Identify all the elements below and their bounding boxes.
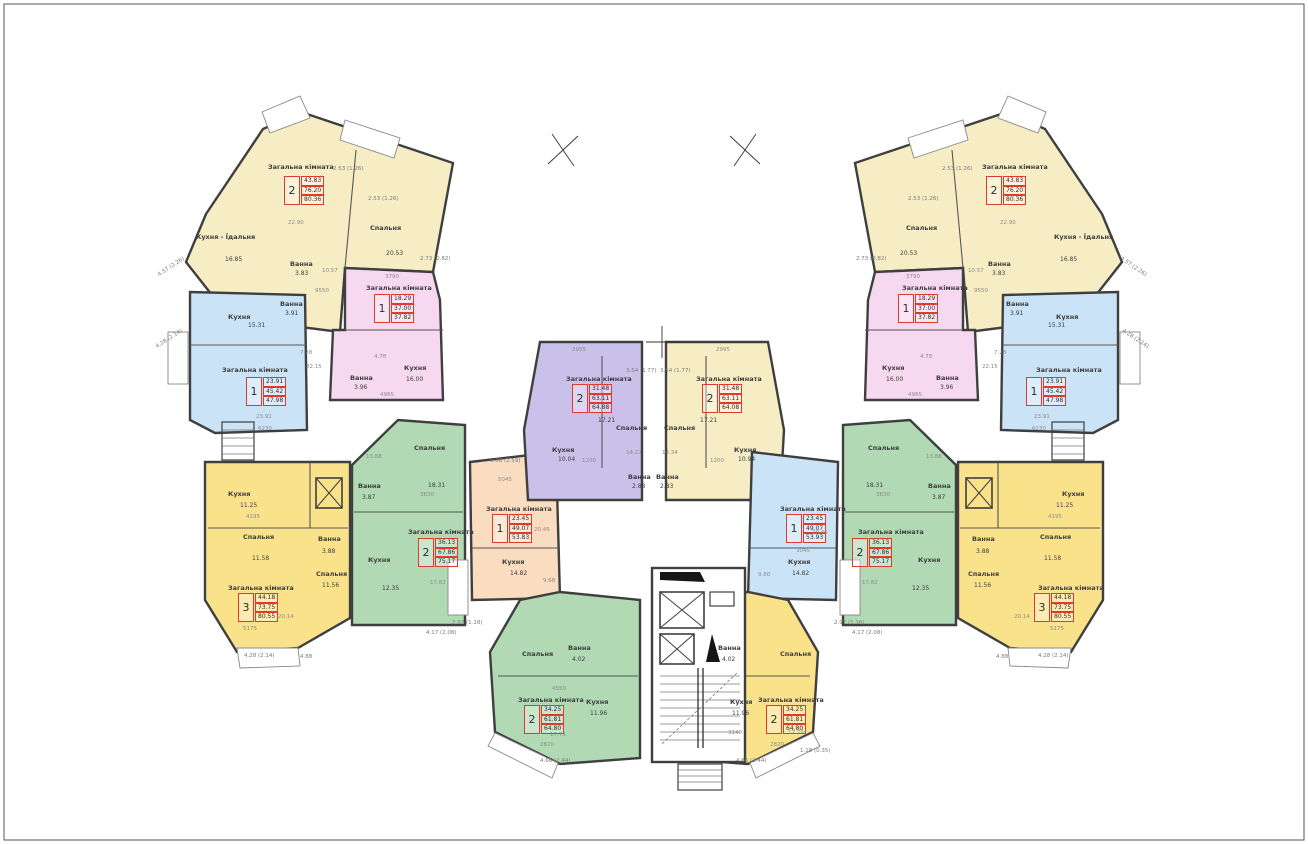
room-area: 14.82 — [510, 570, 527, 577]
dimension: 9.68 — [543, 578, 555, 584]
unit-c5-shape — [490, 592, 640, 764]
balcony-area: 4.17 (2.08) — [426, 630, 457, 636]
room-label: Спальня — [243, 533, 274, 541]
unit-l4-shape — [205, 462, 350, 652]
area-value: 75.17 — [869, 557, 892, 567]
area-value: 73.75 — [1051, 603, 1074, 613]
dimension: 2820 — [540, 742, 554, 748]
dimension: 20.14 — [278, 614, 294, 620]
apartment-number: 1 — [374, 294, 390, 323]
room-area: 3.91 — [1010, 310, 1023, 317]
dimension: 17.82 — [862, 580, 878, 586]
area-value: 43.83 — [301, 176, 324, 186]
room-label: Ванна — [972, 535, 995, 543]
room-label: Кухня - Їдальня — [196, 233, 255, 241]
dimension: 14.34 — [662, 450, 678, 456]
room-area: 17.21 — [700, 417, 717, 424]
dimension: 6230 — [258, 426, 272, 432]
balcony-area: 3.54 (1.77) — [626, 368, 657, 374]
room-label: Ванна — [936, 374, 959, 382]
room-area: 20.53 — [386, 250, 403, 257]
room-area: 3.87 — [362, 494, 375, 501]
room-label: Спальня — [316, 570, 347, 578]
dimension: 4985 — [908, 392, 922, 398]
room-label: Кухня — [552, 446, 574, 454]
area-value: 45.42 — [1043, 387, 1066, 397]
area-value: 18.29 — [391, 294, 414, 304]
room-area: 10.04 — [558, 456, 575, 463]
room-label: Спальня — [1040, 533, 1071, 541]
unit-label: Загальна кімната — [486, 505, 552, 513]
dimension: 10.57 — [968, 268, 984, 274]
unit-label: Загальна кімната — [902, 284, 968, 292]
balcony-area: 4.66 (2.44) — [540, 758, 571, 764]
dimension: 22.15 — [306, 364, 322, 370]
area-value: 75.17 — [435, 557, 458, 567]
room-area: 3.96 — [354, 384, 367, 391]
side-stair-icon — [222, 422, 1084, 460]
room-label: Кухня — [228, 490, 250, 498]
dimension: 13.88 — [926, 454, 942, 460]
room-area: 11.56 — [322, 582, 339, 589]
area-value: 31.48 — [719, 384, 742, 394]
apartment-info-box: 3 44.1873.7580.55 — [1034, 593, 1074, 622]
apartment-info-box: 1 23.9145.4247.98 — [1026, 377, 1066, 406]
balcony-area: 4.88 — [300, 654, 312, 660]
room-label: Кухня — [1056, 313, 1078, 321]
room-label: Ванна — [350, 374, 373, 382]
area-value: 80.36 — [1003, 195, 1026, 205]
unit-label: Загальна кімната — [982, 163, 1048, 171]
room-label: Спальня — [370, 224, 401, 232]
balcony-area: 2.53 (1.26) — [333, 166, 364, 172]
room-area: 11.96 — [590, 710, 607, 717]
dimension: 2995 — [572, 347, 586, 353]
balcony-area: 4.88 — [996, 654, 1008, 660]
area-value: 37.00 — [391, 304, 414, 314]
apartment-number: 2 — [572, 384, 588, 413]
area-value: 64.88 — [589, 403, 612, 413]
dimension: 9550 — [974, 288, 988, 294]
apartment-number: 2 — [524, 705, 540, 734]
balcony-area: 4.28 (2.14) — [244, 653, 275, 659]
apartment-number: 2 — [852, 538, 868, 567]
area-value: 64.08 — [719, 403, 742, 413]
area-value: 34.25 — [783, 705, 806, 715]
dimension: 20.45 — [812, 530, 828, 536]
balcony-area: 2.97 (1.16) — [834, 620, 865, 626]
room-label: Кухня — [788, 558, 810, 566]
dimension: 1200 — [710, 458, 724, 464]
unit-label: Загальна кімната — [518, 696, 584, 704]
area-value: 80.36 — [301, 195, 324, 205]
room-label: Ванна — [358, 482, 381, 490]
unit-label: Загальна кімната — [222, 366, 288, 374]
room-label: Ванна — [1006, 300, 1029, 308]
dimension: 23.91 — [1034, 414, 1050, 420]
room-label: Спальня — [616, 424, 647, 432]
dimension: 22.90 — [1000, 220, 1016, 226]
room-area: 11.58 — [252, 555, 269, 562]
area-value: 61.81 — [541, 715, 564, 725]
balcony-area: 2.53 (1.26) — [942, 166, 973, 172]
floor-plan-shapes — [0, 0, 1308, 844]
room-area: 16.00 — [886, 376, 903, 383]
area-value: 47.98 — [263, 396, 286, 406]
dimension: 4550 — [552, 686, 566, 692]
apartment-number: 3 — [1034, 593, 1050, 622]
room-label: Кухня — [918, 556, 940, 564]
room-area: 12.35 — [912, 585, 929, 592]
unit-label: Загальна кімната — [366, 284, 432, 292]
room-area: 2.83 — [660, 483, 673, 490]
room-label: Кухня — [368, 556, 390, 564]
unit-label: Загальна кімната — [696, 375, 762, 383]
area-value: 80.55 — [1051, 612, 1074, 622]
area-value: 49.07 — [509, 524, 532, 534]
room-area: 3.87 — [932, 494, 945, 501]
apartment-info-box: 3 44.1873.7580.55 — [238, 593, 278, 622]
room-label: Ванна — [628, 473, 651, 481]
room-label: Спальня — [522, 650, 553, 658]
room-label: Кухня - Їдальня — [1054, 233, 1113, 241]
room-area: 16.85 — [225, 256, 242, 263]
dimension: 4195 — [1048, 514, 1062, 520]
room-label: Кухня — [404, 364, 426, 372]
unit-label: Загальна кімната — [858, 528, 924, 536]
area-value: 47.98 — [1043, 396, 1066, 406]
room-label: Ванна — [718, 644, 741, 652]
room-label: Спальня — [414, 444, 445, 452]
room-label: Ванна — [318, 535, 341, 543]
area-value: 67.86 — [869, 548, 892, 558]
dimension: 13.88 — [366, 454, 382, 460]
unit-label: Загальна кімната — [566, 375, 632, 383]
dimension: 3790 — [385, 274, 399, 280]
room-label: Кухня — [882, 364, 904, 372]
room-area: 20.53 — [900, 250, 917, 257]
dimension: 2820 — [770, 742, 784, 748]
room-label: Спальня — [968, 570, 999, 578]
dimension: 1200 — [582, 458, 596, 464]
room-label: Кухня — [228, 313, 250, 321]
balcony-area: 1.18 (0.35) — [800, 748, 831, 754]
dimension: 22.90 — [288, 220, 304, 226]
room-label: Кухня — [502, 558, 524, 566]
axis-cross-marks — [548, 134, 760, 358]
dimension: 7.28 — [300, 350, 312, 356]
apartment-info-box: 1 18.2937.0037.82 — [898, 294, 938, 323]
apartment-info-box: 1 23.4549.0753.83 — [492, 514, 532, 543]
unit-label: Загальна кімната — [780, 505, 846, 513]
apartment-number: 2 — [766, 705, 782, 734]
area-value: 73.75 — [255, 603, 278, 613]
area-value: 23.91 — [1043, 377, 1066, 387]
dimension: 3045 — [796, 548, 810, 554]
apartment-info-box: 2 36.1367.8675.17 — [418, 538, 458, 567]
area-value: 44.18 — [1051, 593, 1074, 603]
area-value: 45.42 — [263, 387, 286, 397]
balcony-area: 5.08 (2.59) — [490, 458, 521, 464]
room-label: Ванна — [280, 300, 303, 308]
room-area: 15.31 — [248, 322, 265, 329]
room-area: 3.88 — [976, 548, 989, 555]
unit-label: Загальна кімната — [268, 163, 334, 171]
apartment-number: 1 — [492, 514, 508, 543]
room-label: Кухня — [730, 698, 752, 706]
apartment-info-box: 1 23.4549.0753.93 — [786, 514, 826, 543]
balcony-area: 4.66 (2.44) — [736, 758, 767, 764]
apartment-info-box: 2 31.4863.1164.88 — [572, 384, 612, 413]
dimension: 4.78 — [374, 354, 386, 360]
room-area: 18.31 — [866, 482, 883, 489]
room-label: Спальня — [906, 224, 937, 232]
room-area: 11.56 — [974, 582, 991, 589]
room-area: 11.96 — [732, 710, 749, 717]
stair-elevator-core — [652, 568, 745, 790]
dimension: 17.79 — [788, 730, 804, 736]
dimension: 5175 — [1050, 626, 1064, 632]
room-label: Ванна — [568, 644, 591, 652]
area-value: 37.00 — [915, 304, 938, 314]
apartment-info-box: 2 43.8376.2080.36 — [284, 176, 324, 205]
area-value: 37.82 — [391, 313, 414, 323]
area-value: 63.11 — [589, 394, 612, 404]
balcony-area: 2.73 (0.82) — [856, 256, 887, 262]
dimension: 14.27 — [626, 450, 642, 456]
unit-label: Загальна кімната — [408, 528, 474, 536]
dimension: 17.79 — [550, 732, 566, 738]
dimension: 4985 — [380, 392, 394, 398]
room-area: 3.83 — [295, 270, 308, 277]
dimension: 3830 — [876, 492, 890, 498]
apartment-number: 3 — [238, 593, 254, 622]
area-value: 36.13 — [869, 538, 892, 548]
apartment-number: 1 — [246, 377, 262, 406]
apartment-number: 2 — [418, 538, 434, 567]
apartment-info-box: 1 18.2937.0037.82 — [374, 294, 414, 323]
dimension: 3790 — [906, 274, 920, 280]
room-area: 11.25 — [240, 502, 257, 509]
balcony-area: 2.53 (1.26) — [368, 196, 399, 202]
room-label: Кухня — [586, 698, 608, 706]
area-value: 37.82 — [915, 313, 938, 323]
room-area: 11.58 — [1044, 555, 1061, 562]
room-area: 15.31 — [1048, 322, 1065, 329]
apartment-number: 2 — [284, 176, 300, 205]
room-label: Ванна — [656, 473, 679, 481]
area-value: 61.81 — [783, 715, 806, 725]
room-area: 3.83 — [992, 270, 1005, 277]
area-value: 18.29 — [915, 294, 938, 304]
apartment-info-box: 2 43.8376.2080.36 — [986, 176, 1026, 205]
area-value: 23.45 — [803, 514, 826, 524]
area-value: 53.83 — [509, 533, 532, 543]
room-label: Кухня — [734, 446, 756, 454]
room-area: 4.02 — [722, 656, 735, 663]
room-area: 4.02 — [572, 656, 585, 663]
area-value: 31.48 — [589, 384, 612, 394]
area-value: 36.13 — [435, 538, 458, 548]
area-value: 44.18 — [255, 593, 278, 603]
balcony-area: 4.28 (2.14) — [1038, 653, 1069, 659]
dimension: 5045 — [498, 477, 512, 483]
dimension: 10.57 — [322, 268, 338, 274]
room-area: 3.96 — [940, 384, 953, 391]
apartment-info-box: 2 34.2561.8164.80 — [524, 705, 564, 734]
room-label: Ванна — [928, 482, 951, 490]
room-area: 3.91 — [285, 310, 298, 317]
room-area: 16.85 — [1060, 256, 1077, 263]
floor-plan-canvas: Загальна кімната 2 43.8376.2080.36 Кухня… — [0, 0, 1308, 844]
area-value: 23.91 — [263, 377, 286, 387]
area-value: 43.83 — [1003, 176, 1026, 186]
room-area: 2.83 — [632, 483, 645, 490]
area-value: 67.86 — [435, 548, 458, 558]
dimension: 9.60 — [758, 572, 770, 578]
balcony-area: 2.53 (1.26) — [908, 196, 939, 202]
room-area: 11.25 — [1056, 502, 1073, 509]
room-label: Ванна — [988, 260, 1011, 268]
area-value: 34.25 — [541, 705, 564, 715]
dimension: 4195 — [246, 514, 260, 520]
area-value: 80.55 — [255, 612, 278, 622]
room-area: 17.21 — [598, 417, 615, 424]
dimension: 9550 — [315, 288, 329, 294]
dimension: 4.78 — [920, 354, 932, 360]
dimension: 20.45 — [534, 527, 550, 533]
dimension: 2995 — [716, 347, 730, 353]
area-value: 76.20 — [1003, 186, 1026, 196]
apartment-number: 2 — [986, 176, 1002, 205]
balcony-area: 2.97 (1.18) — [452, 620, 483, 626]
dimension: 3830 — [420, 492, 434, 498]
area-value: 23.45 — [509, 514, 532, 524]
dimension: 20.14 — [1014, 614, 1030, 620]
apartment-info-box: 1 23.9145.4247.98 — [246, 377, 286, 406]
dimension: 23.91 — [256, 414, 272, 420]
apartment-number: 1 — [786, 514, 802, 543]
apartment-info-box: 2 36.1367.8675.17 — [852, 538, 892, 567]
unit-label: Загальна кімната — [758, 696, 824, 704]
dimension: 22.15 — [982, 364, 998, 370]
dimension: 6230 — [1032, 426, 1046, 432]
room-area: 10.94 — [738, 456, 755, 463]
room-area: 3.88 — [322, 548, 335, 555]
room-area: 16.00 — [406, 376, 423, 383]
dimension: 3140 — [728, 730, 742, 736]
room-area: 14.82 — [792, 570, 809, 577]
unit-label: Загальна кімната — [1038, 584, 1104, 592]
room-label: Спальня — [664, 424, 695, 432]
apartment-number: 1 — [1026, 377, 1042, 406]
apartment-number: 2 — [702, 384, 718, 413]
entrance-steps-icon — [678, 764, 722, 790]
dimension: 7.28 — [994, 350, 1006, 356]
dimension: 5175 — [243, 626, 257, 632]
unit-label: Загальна кімната — [1036, 366, 1102, 374]
room-label: Спальня — [868, 444, 899, 452]
room-label: Спальня — [780, 650, 811, 658]
area-value: 63.11 — [719, 394, 742, 404]
room-area: 12.35 — [382, 585, 399, 592]
dimension: 17.82 — [430, 580, 446, 586]
apartment-info-box: 2 31.4863.1164.08 — [702, 384, 742, 413]
room-area: 18.31 — [428, 482, 445, 489]
area-value: 76.20 — [301, 186, 324, 196]
unit-c2-shape — [524, 342, 642, 500]
room-label: Кухня — [1062, 490, 1084, 498]
balcony-area: 2.73 (0.82) — [420, 256, 451, 262]
room-label: Ванна — [290, 260, 313, 268]
apartment-number: 1 — [898, 294, 914, 323]
balcony-area: 3.54 (1.77) — [660, 368, 691, 374]
balcony-area: 4.17 (2.08) — [852, 630, 883, 636]
unit-label: Загальна кімната — [228, 584, 294, 592]
